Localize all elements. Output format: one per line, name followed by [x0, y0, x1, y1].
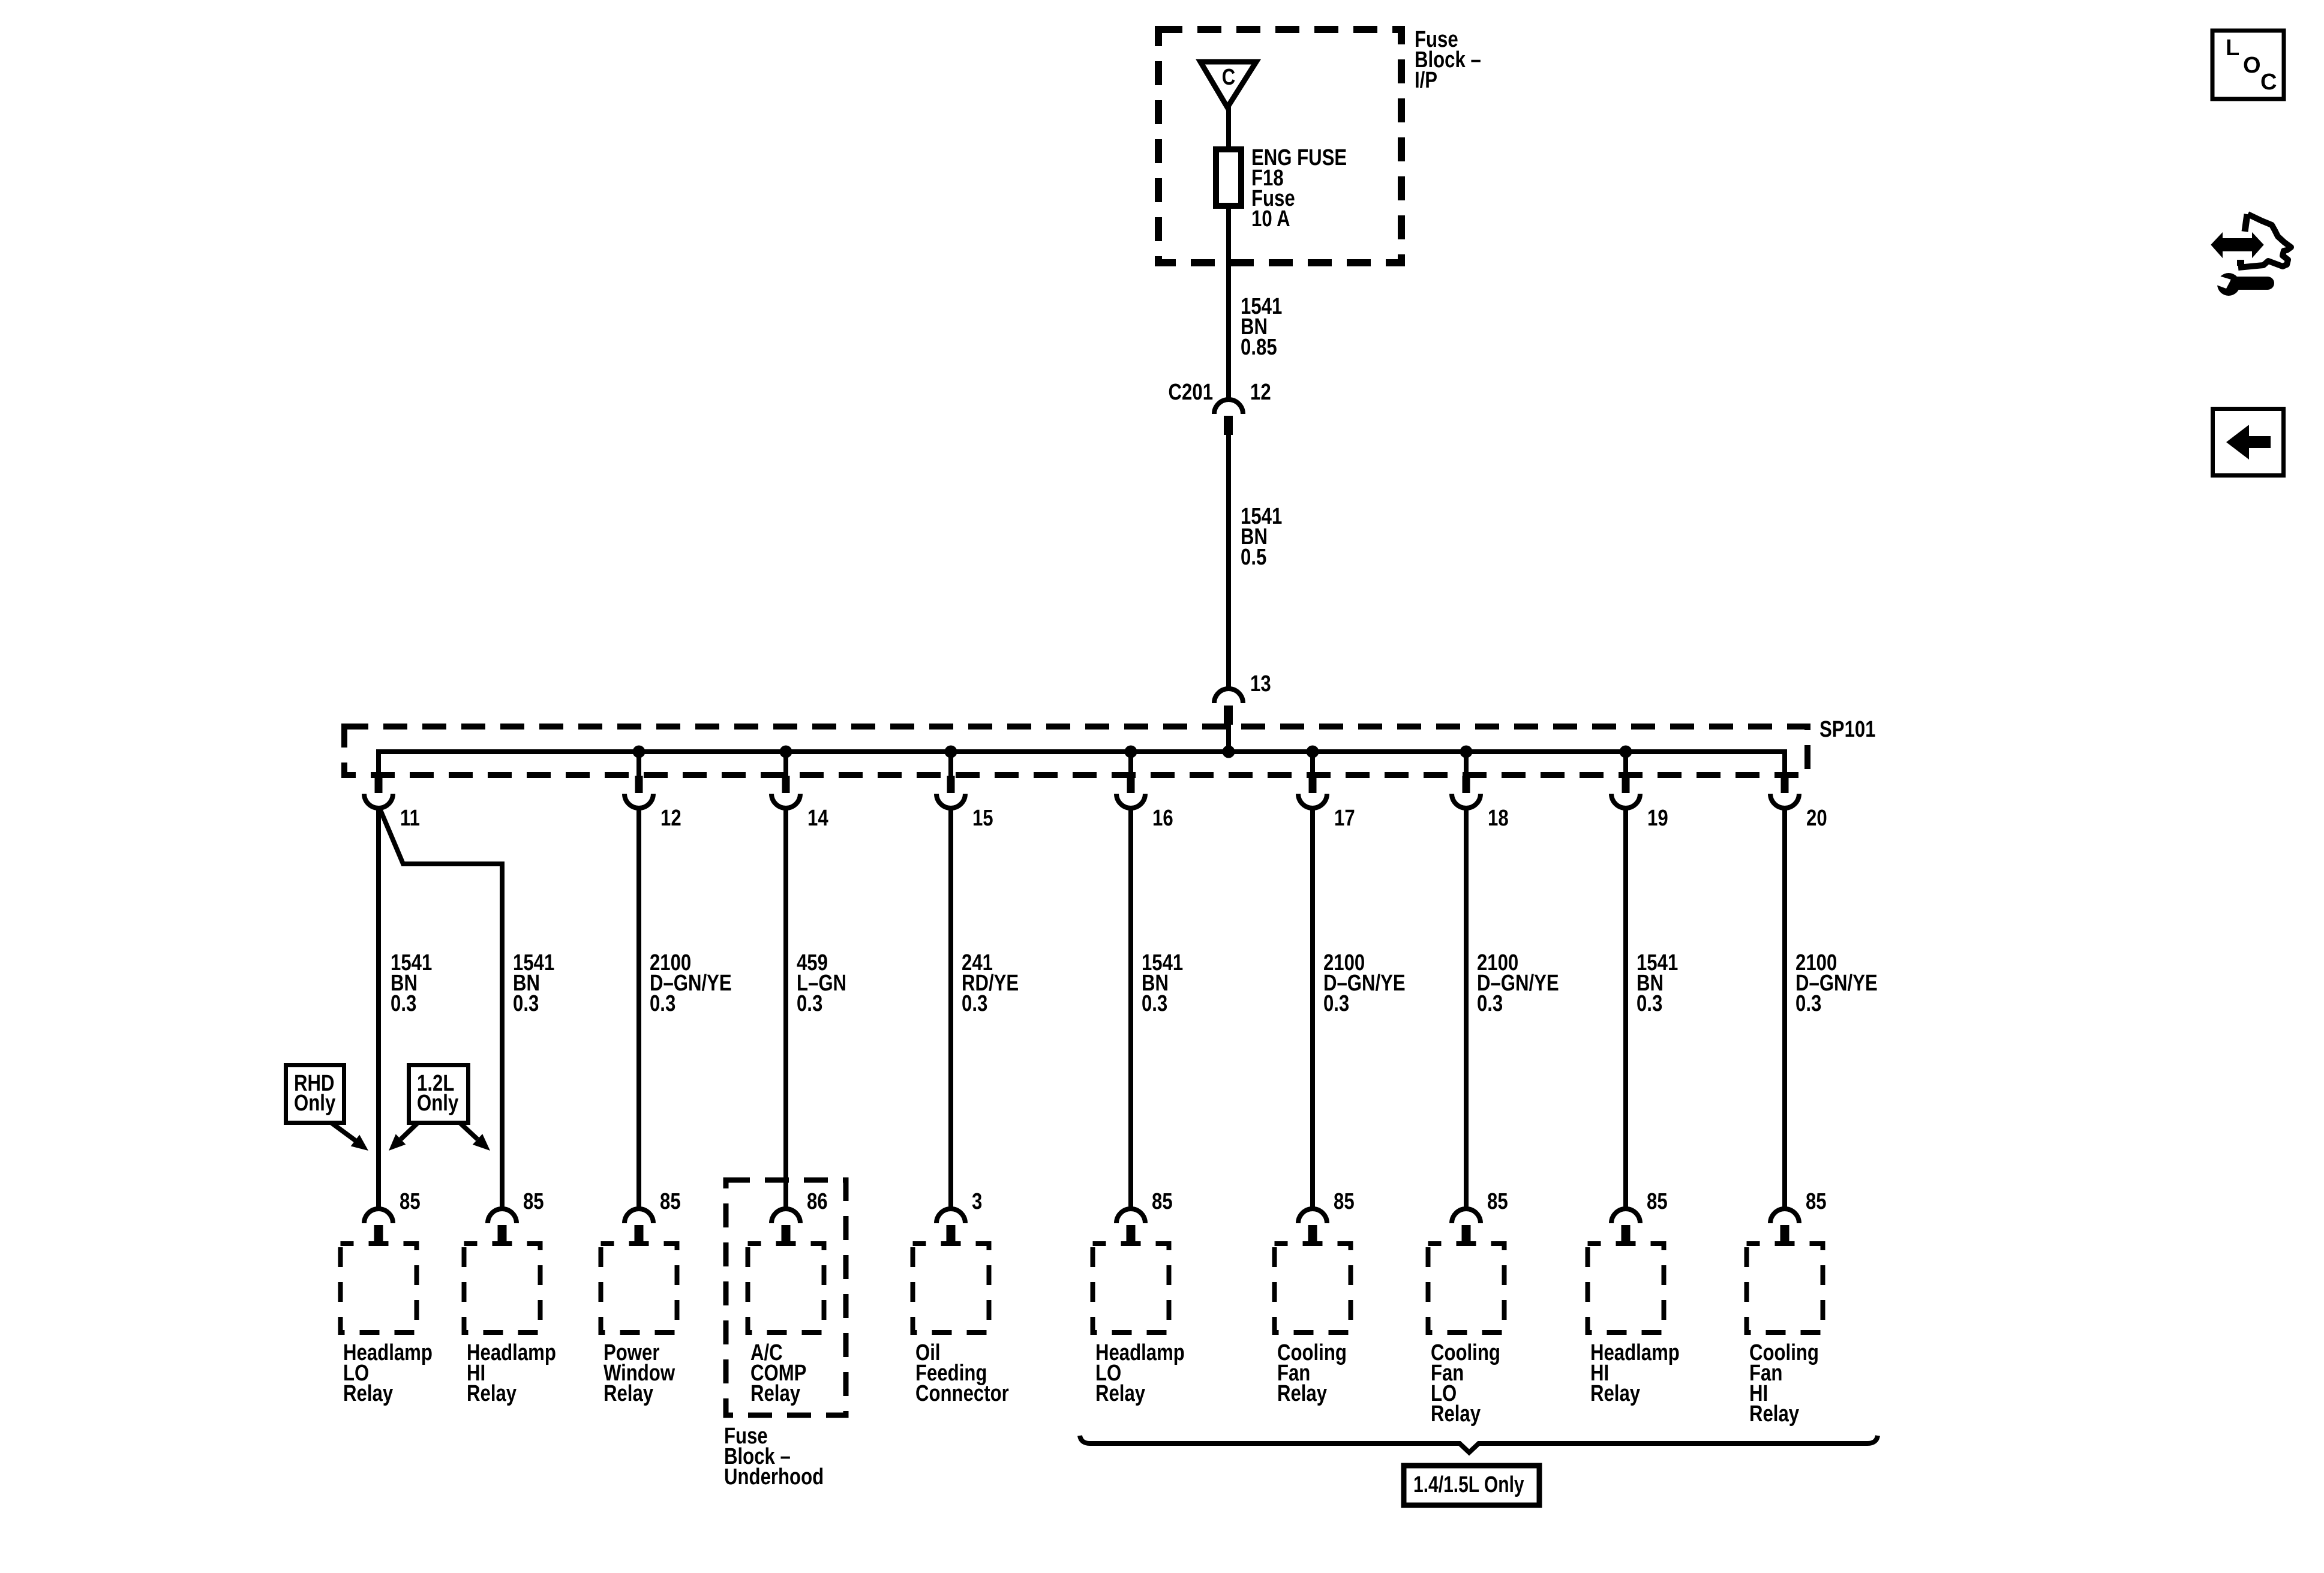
svg-text:0.3: 0.3 — [650, 991, 675, 1016]
svg-text:O: O — [2243, 53, 2261, 78]
svg-text:0.3: 0.3 — [1323, 991, 1349, 1016]
svg-text:SP101: SP101 — [1819, 717, 1876, 742]
svg-text:Relay: Relay — [467, 1381, 517, 1406]
svg-text:0.3: 0.3 — [1477, 991, 1503, 1016]
svg-text:Relay: Relay — [1749, 1401, 1800, 1427]
svg-text:Relay: Relay — [1277, 1381, 1328, 1406]
svg-text:0.3: 0.3 — [1142, 991, 1167, 1016]
svg-text:0.3: 0.3 — [1637, 991, 1662, 1016]
svg-text:85: 85 — [400, 1189, 421, 1214]
svg-text:L: L — [2226, 35, 2239, 61]
svg-text:16: 16 — [1152, 806, 1173, 831]
svg-text:Only: Only — [417, 1091, 459, 1116]
svg-text:0.3: 0.3 — [1795, 991, 1821, 1016]
svg-text:85: 85 — [523, 1189, 544, 1214]
svg-text:Relay: Relay — [1590, 1381, 1641, 1406]
svg-text:0.3: 0.3 — [391, 991, 416, 1016]
svg-text:17: 17 — [1334, 806, 1355, 831]
svg-text:85: 85 — [1152, 1189, 1173, 1214]
svg-text:14: 14 — [807, 806, 828, 831]
svg-text:Relay: Relay — [1431, 1401, 1481, 1427]
svg-text:0.5: 0.5 — [1241, 545, 1266, 570]
svg-text:3: 3 — [972, 1189, 982, 1214]
svg-text:0.3: 0.3 — [513, 991, 539, 1016]
svg-text:0.85: 0.85 — [1241, 335, 1277, 360]
svg-text:1.4/1.5L Only: 1.4/1.5L Only — [1413, 1472, 1524, 1497]
svg-text:Only: Only — [294, 1091, 336, 1116]
svg-text:18: 18 — [1488, 806, 1509, 831]
svg-text:20: 20 — [1806, 806, 1827, 831]
svg-text:C201: C201 — [1169, 380, 1213, 405]
svg-text:0.3: 0.3 — [962, 991, 987, 1016]
svg-text:85: 85 — [1647, 1189, 1668, 1214]
svg-text:86: 86 — [807, 1189, 828, 1214]
svg-text:Relay: Relay — [1095, 1381, 1146, 1406]
svg-text:85: 85 — [1334, 1189, 1355, 1214]
svg-text:12: 12 — [660, 806, 681, 831]
svg-text:19: 19 — [1647, 806, 1668, 831]
svg-text:Relay: Relay — [603, 1381, 654, 1406]
svg-text:0.3: 0.3 — [797, 991, 822, 1016]
svg-text:C: C — [2260, 70, 2277, 95]
svg-text:85: 85 — [1806, 1189, 1827, 1214]
svg-text:Relay: Relay — [343, 1381, 394, 1406]
svg-text:11: 11 — [400, 806, 420, 831]
svg-text:I/P: I/P — [1415, 68, 1437, 93]
svg-text:10 A: 10 A — [1251, 206, 1290, 232]
svg-text:Relay: Relay — [750, 1381, 801, 1406]
svg-text:15: 15 — [972, 806, 993, 831]
svg-text:85: 85 — [660, 1189, 681, 1214]
svg-text:12: 12 — [1250, 380, 1271, 405]
svg-text:Connector: Connector — [915, 1381, 1009, 1406]
svg-text:85: 85 — [1487, 1189, 1508, 1214]
svg-text:C: C — [1222, 65, 1236, 90]
svg-text:13: 13 — [1250, 671, 1271, 697]
svg-text:Underhood: Underhood — [724, 1464, 824, 1490]
